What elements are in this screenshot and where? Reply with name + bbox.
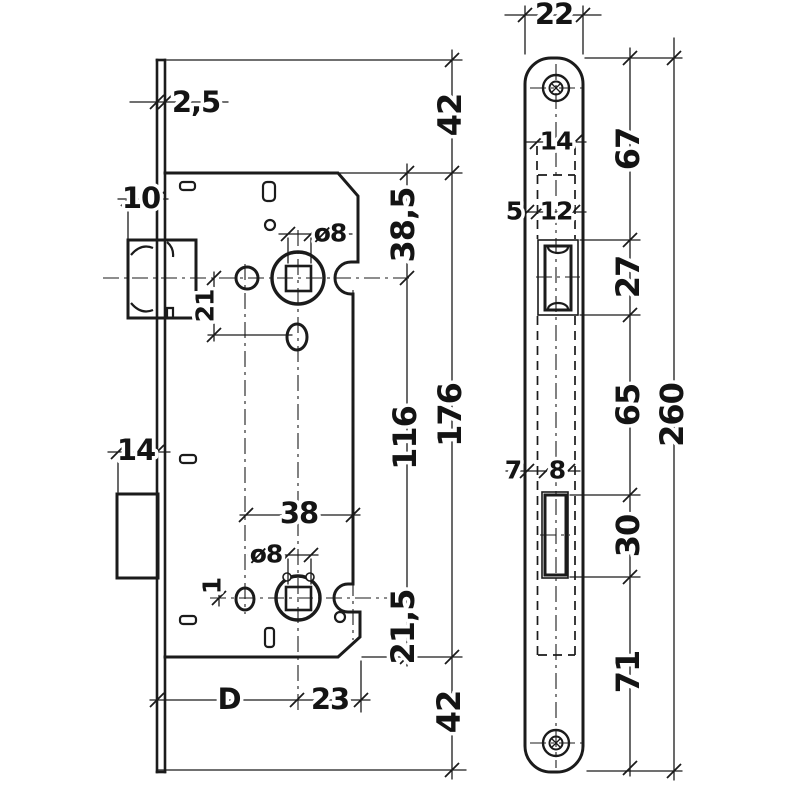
- dim-latch-cutout-width: 12: [540, 197, 573, 226]
- dim-follower-offset: 21: [191, 290, 220, 323]
- dim-case-top-to-axis: 38,5: [384, 188, 422, 263]
- dim-case-length: 176: [431, 383, 469, 447]
- dim-backset: D: [217, 682, 240, 716]
- dim-bolt-cutout-height: 30: [609, 515, 647, 558]
- dim-spindle-lower: ø8: [250, 540, 283, 569]
- dim-case-to-plate-bottom: 42: [430, 691, 468, 734]
- dim-edge-to-case: 5: [506, 197, 522, 226]
- dim-bolt-cutout-width: 8: [549, 456, 565, 485]
- latch-bolt-block: [128, 240, 196, 318]
- dim-faceplate-thickness: 2,5: [172, 85, 220, 119]
- dim-hole-spacing: 38: [280, 496, 318, 530]
- drawing-canvas: 2,5 10 14 21 1 ø8 ø8 38 D 23 38,5 116 21…: [0, 0, 800, 800]
- deadbolt-block: [117, 494, 158, 578]
- dimension-labels: 2,5 10 14 21 1 ø8 ø8 38 D 23 38,5 116 21…: [117, 0, 691, 733]
- dim-latch-protrusion: 10: [122, 181, 160, 215]
- dim-axis-spacing: 116: [386, 406, 424, 470]
- dim-case-width: 14: [540, 127, 573, 156]
- lock-technical-drawing: 2,5 10 14 21 1 ø8 ø8 38 D 23 38,5 116 21…: [0, 0, 800, 800]
- dim-plate-length: 260: [653, 383, 691, 447]
- faceplate-side: [157, 60, 165, 772]
- centerlines-left-view: [103, 230, 414, 712]
- dim-bolt-protrusion: 14: [117, 433, 155, 467]
- case-tabs-and-holes: [180, 182, 345, 647]
- dim-nut-offset: 1: [198, 578, 227, 594]
- deadbolt-cutout: [542, 468, 568, 578]
- dim-axis-to-back: 23: [311, 682, 349, 716]
- dim-plate-top-to-case: 42: [431, 94, 469, 137]
- dim-bolt-cutout-to-bottom: 71: [609, 651, 647, 694]
- lower-spindle-follower: [236, 573, 320, 620]
- dim-spindle-upper: ø8: [314, 219, 347, 248]
- dim-plate-width: 22: [535, 0, 573, 31]
- left-view-lock-case: [103, 60, 414, 772]
- dim-latch-cutout-height: 27: [609, 256, 647, 299]
- dim-axis-to-case-bottom: 21,5: [384, 590, 422, 665]
- dim-latch-to-bolt-cutout: 65: [609, 384, 647, 427]
- dim-edge-to-bolt-cutout: 7: [505, 456, 521, 485]
- dim-top-to-latch-cutout: 67: [609, 128, 647, 171]
